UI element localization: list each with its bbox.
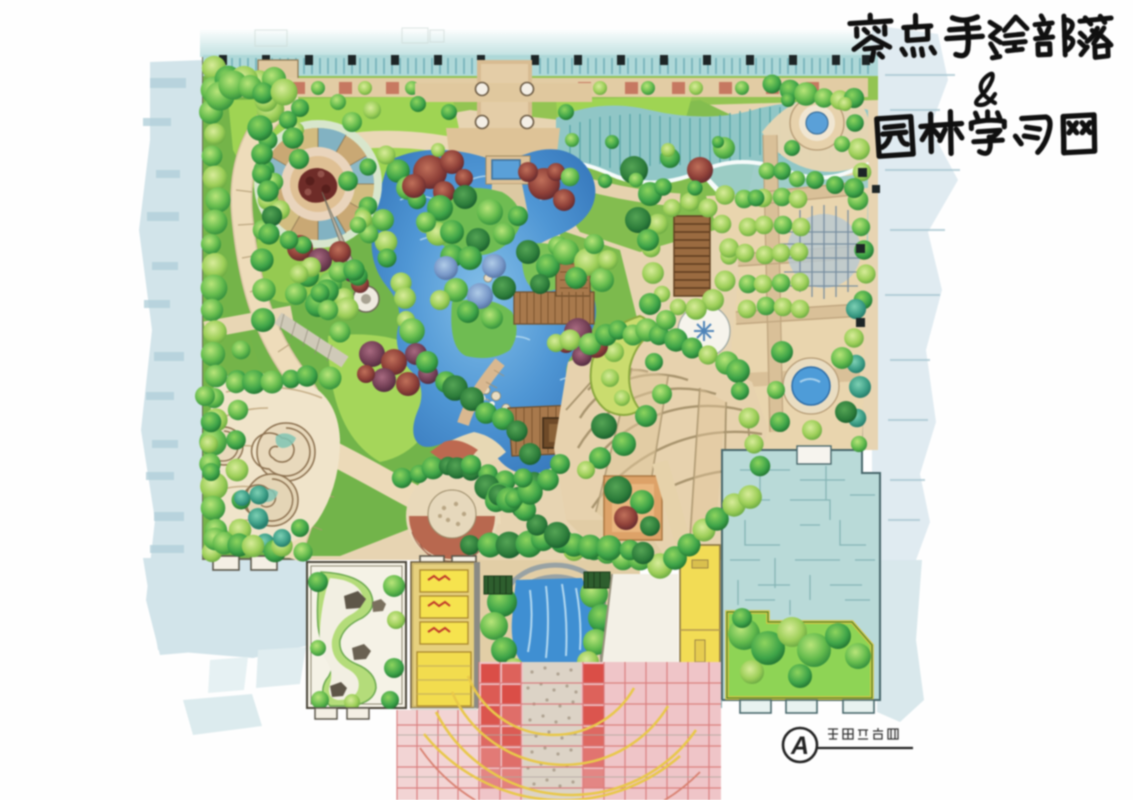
svg-text:A: A: [790, 732, 809, 760]
